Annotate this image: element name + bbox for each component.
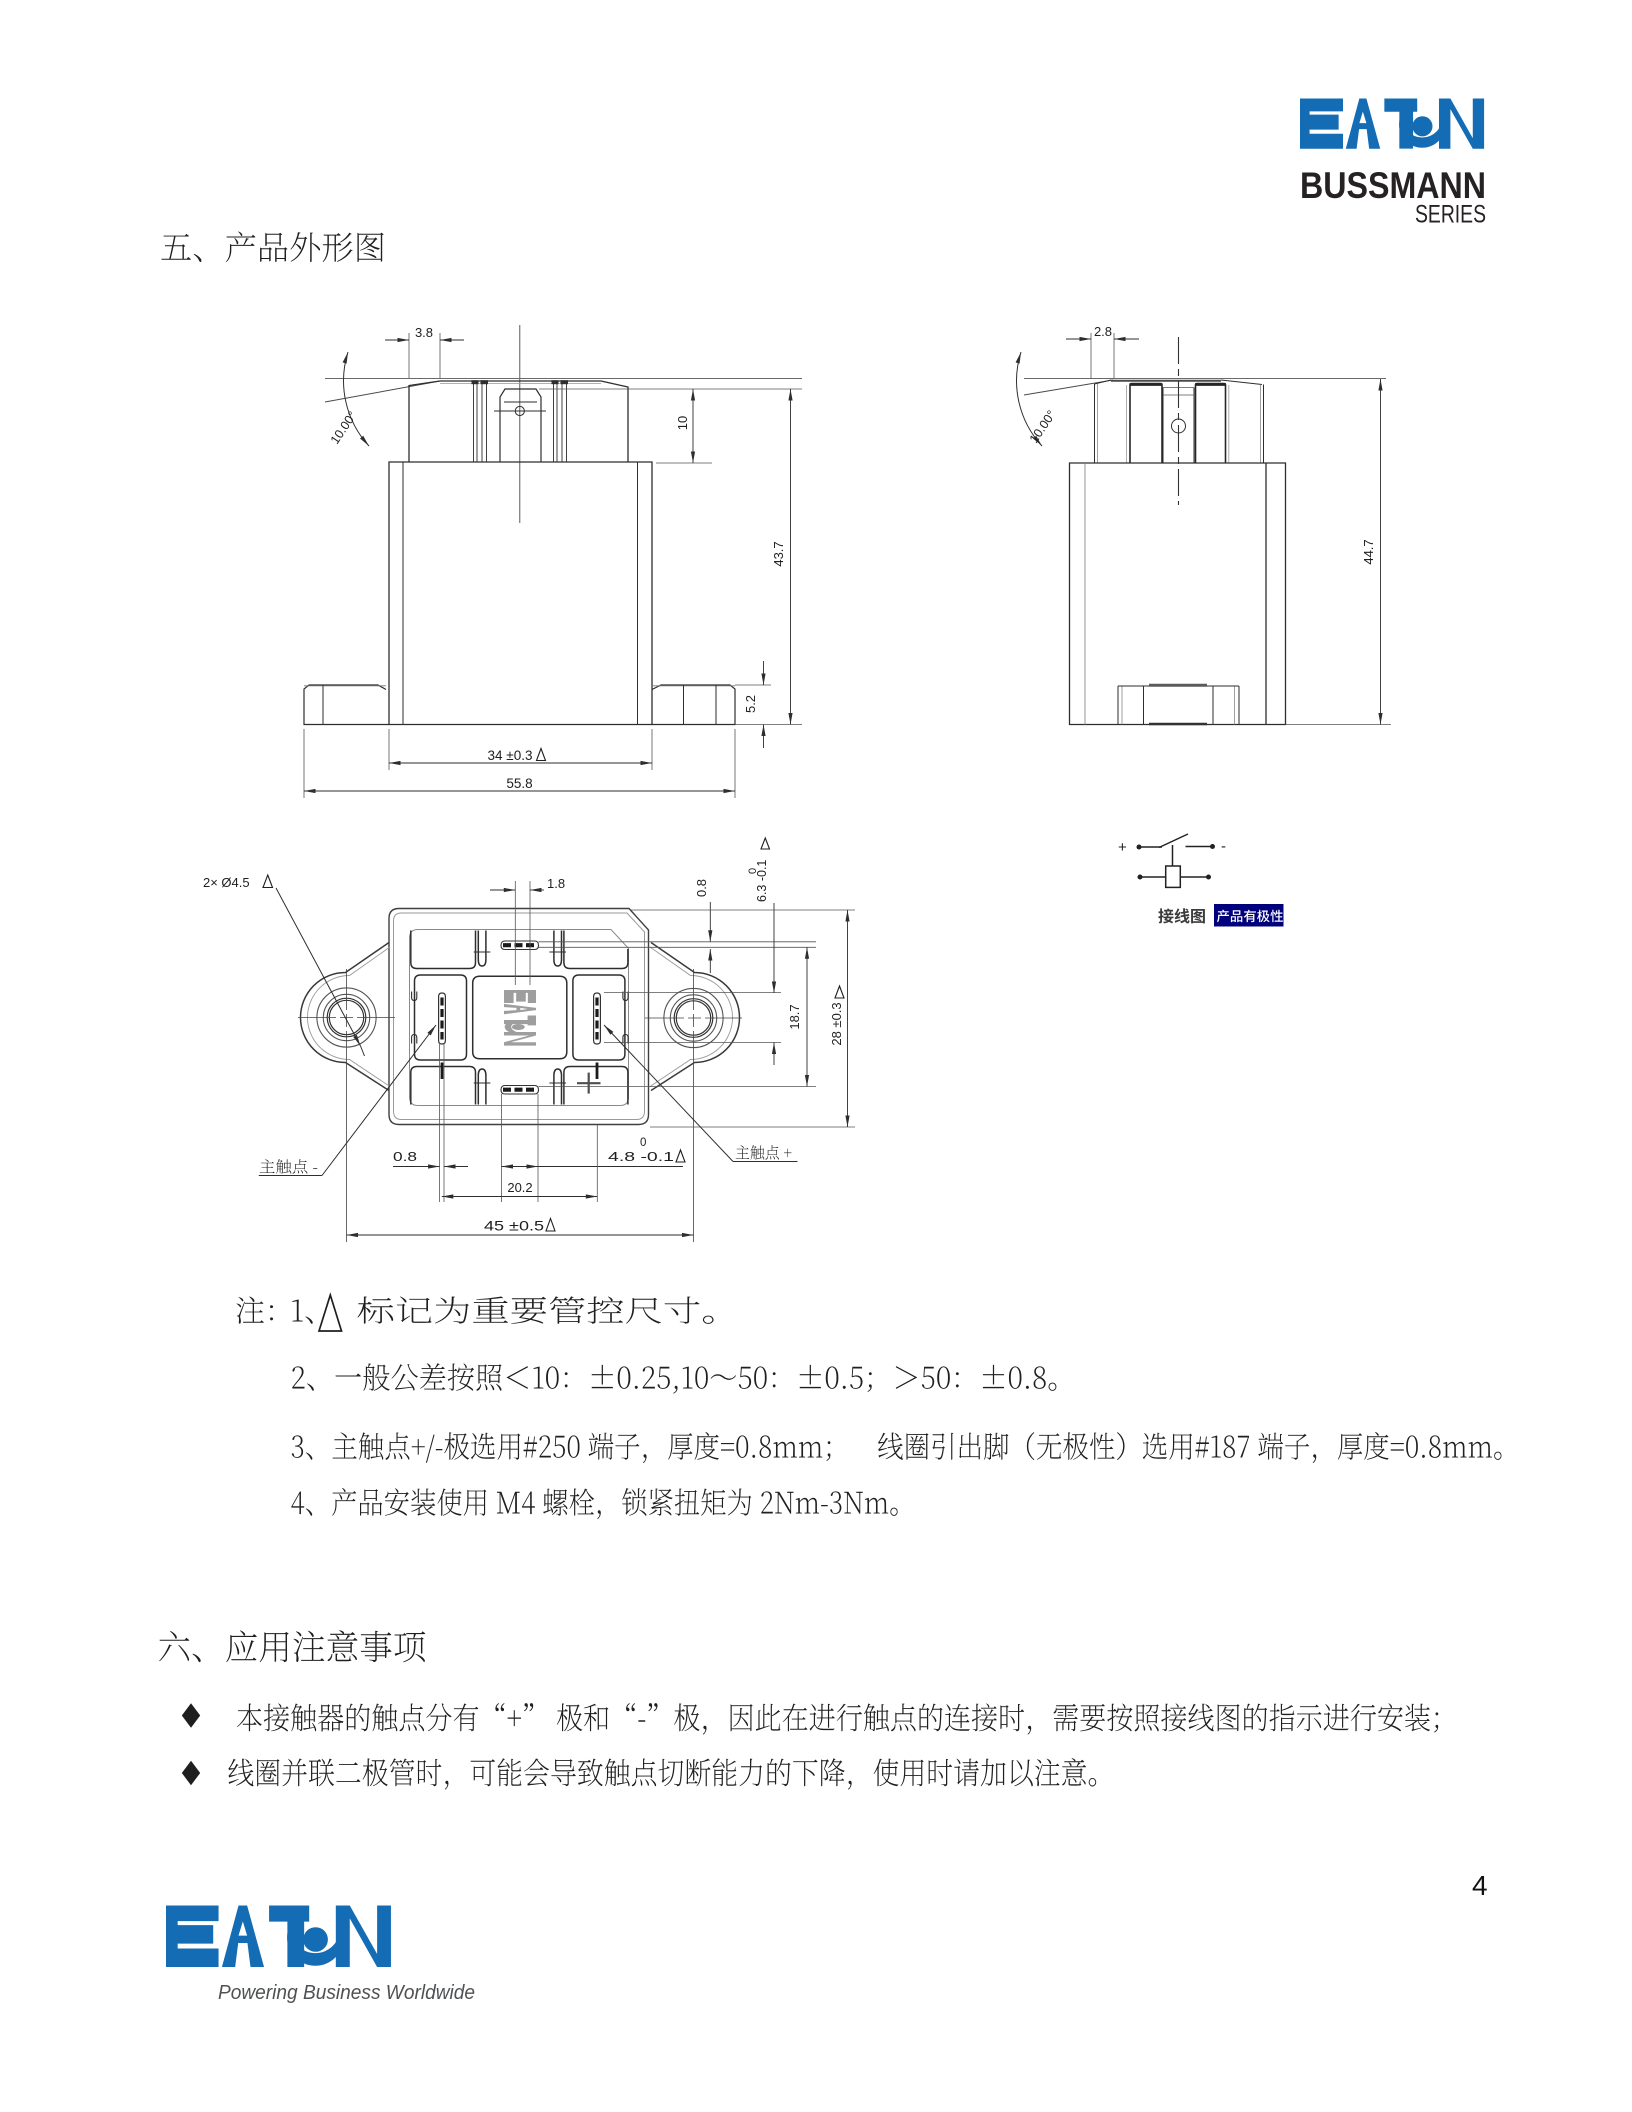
svg-text:10.00°: 10.00° (328, 409, 360, 447)
svg-text:55.8: 55.8 (506, 776, 532, 791)
svg-text:-: - (1221, 838, 1226, 855)
svg-text:34 ±0.3: 34 ±0.3 (488, 748, 533, 763)
svg-text:6.3 -0.1: 6.3 -0.1 (755, 860, 769, 902)
svg-text:0.8: 0.8 (694, 879, 709, 897)
svg-text:45 ±0.5: 45 ±0.5 (484, 1219, 544, 1234)
svg-text:2× Ø4.5: 2× Ø4.5 (203, 875, 250, 890)
svg-text:10: 10 (675, 416, 690, 430)
svg-text:Powering Business Worldwide: Powering Business Worldwide (218, 1981, 475, 2004)
svg-text:1.8: 1.8 (547, 876, 565, 891)
svg-text:3.8: 3.8 (415, 325, 433, 340)
svg-text:10.00°: 10.00° (1027, 408, 1059, 446)
svg-text:43.7: 43.7 (771, 541, 786, 566)
svg-text:4.8 -0.1: 4.8 -0.1 (608, 1149, 674, 1164)
svg-text:18.7: 18.7 (787, 1004, 802, 1029)
svg-text:4: 4 (1472, 1870, 1488, 1901)
svg-text:+: + (1118, 839, 1127, 856)
svg-text:28 ±0.3: 28 ±0.3 (829, 1002, 844, 1045)
svg-text:44.7: 44.7 (1361, 539, 1376, 564)
svg-text:SERIES: SERIES (1415, 201, 1486, 229)
svg-text:0: 0 (640, 1137, 646, 1149)
svg-text:20.2: 20.2 (507, 1180, 532, 1195)
svg-text:0: 0 (747, 868, 759, 874)
svg-text:5.2: 5.2 (743, 695, 758, 713)
svg-text:2.8: 2.8 (1094, 324, 1112, 339)
svg-text:0.8: 0.8 (393, 1149, 417, 1164)
